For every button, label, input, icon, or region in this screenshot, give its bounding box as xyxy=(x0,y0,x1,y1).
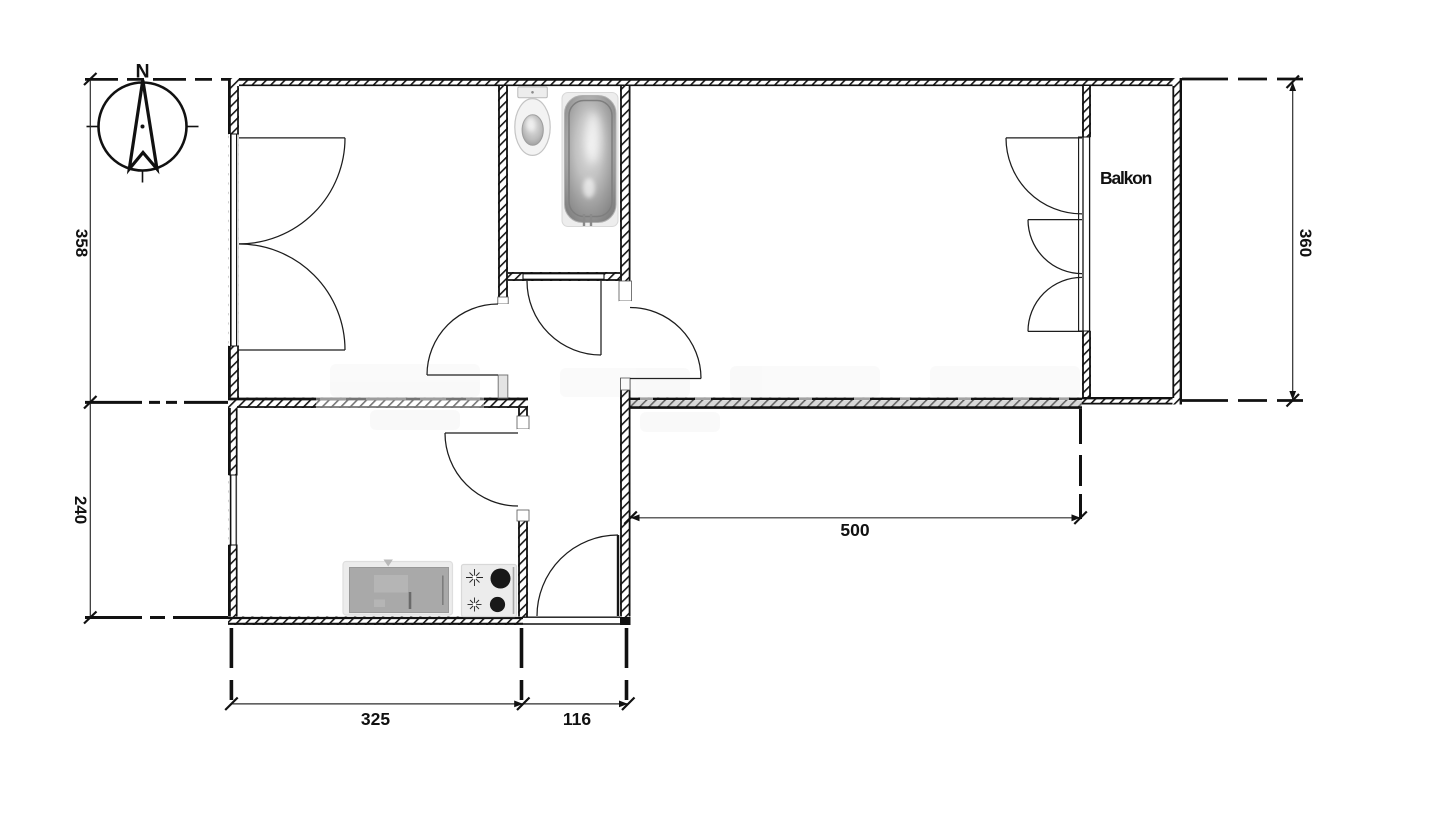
svg-text:360: 360 xyxy=(1296,229,1315,257)
svg-text:Balkon: Balkon xyxy=(1100,168,1152,188)
svg-text:325: 325 xyxy=(361,709,390,729)
svg-text:116: 116 xyxy=(563,709,591,729)
svg-text:240: 240 xyxy=(71,496,90,524)
svg-text:358: 358 xyxy=(72,229,91,257)
svg-text:500: 500 xyxy=(840,520,869,540)
